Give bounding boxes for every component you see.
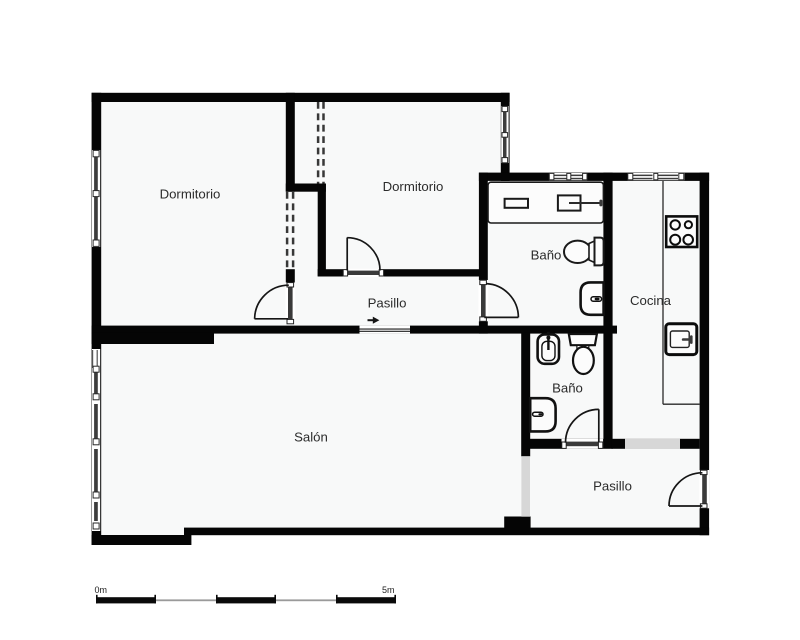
- svg-text:0m: 0m: [95, 585, 108, 595]
- svg-text:Dormitorio: Dormitorio: [383, 179, 444, 194]
- svg-text:Salón: Salón: [294, 429, 328, 444]
- svg-text:Pasillo: Pasillo: [593, 478, 632, 493]
- svg-text:5m: 5m: [382, 585, 395, 595]
- svg-text:Pasillo: Pasillo: [368, 295, 407, 310]
- svg-text:Dormitorio: Dormitorio: [160, 186, 221, 201]
- svg-text:Baño: Baño: [552, 381, 583, 396]
- svg-text:Baño: Baño: [531, 247, 562, 262]
- svg-text:Cocina: Cocina: [630, 293, 672, 308]
